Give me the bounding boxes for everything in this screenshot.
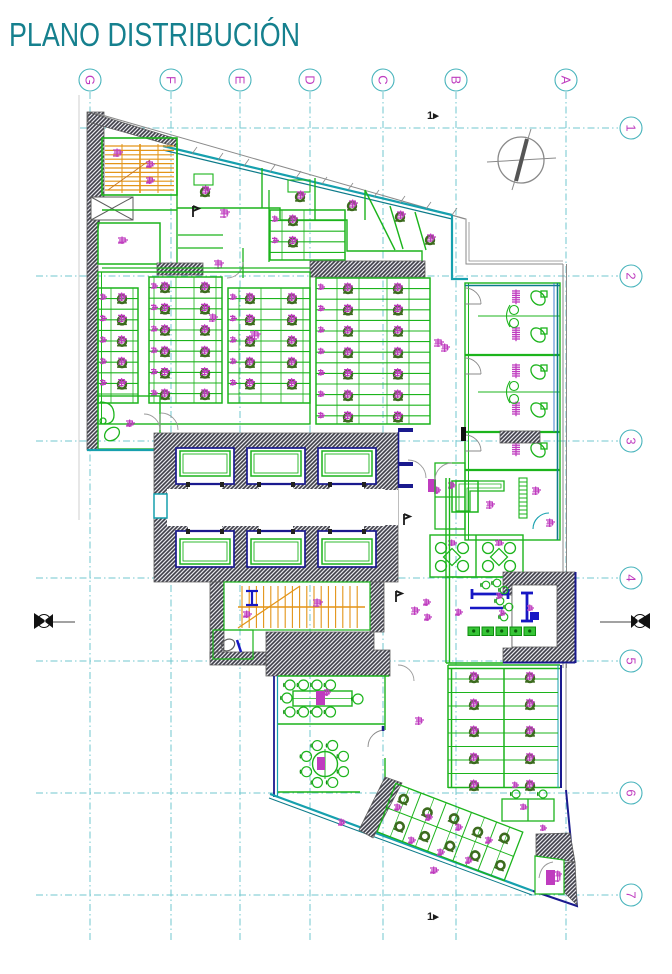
svg-text:3: 3 bbox=[624, 437, 639, 444]
svg-text:PLANO DISTRIBUCIÓN: PLANO DISTRIBUCIÓN bbox=[9, 16, 300, 53]
svg-text:7: 7 bbox=[624, 891, 639, 898]
svg-text:5: 5 bbox=[624, 657, 639, 664]
svg-text:6: 6 bbox=[624, 789, 639, 796]
svg-text:A: A bbox=[559, 76, 574, 85]
svg-text:2: 2 bbox=[624, 272, 639, 279]
svg-text:1▸: 1▸ bbox=[427, 911, 439, 923]
svg-text:D: D bbox=[303, 75, 318, 84]
svg-text:F: F bbox=[164, 76, 179, 84]
svg-text:E: E bbox=[233, 76, 248, 85]
svg-text:C: C bbox=[376, 75, 391, 84]
svg-text:B: B bbox=[449, 76, 464, 85]
svg-text:1▸: 1▸ bbox=[427, 110, 439, 122]
svg-text:4: 4 bbox=[624, 574, 639, 581]
svg-text:G: G bbox=[83, 75, 98, 85]
svg-text:1: 1 bbox=[624, 124, 639, 131]
